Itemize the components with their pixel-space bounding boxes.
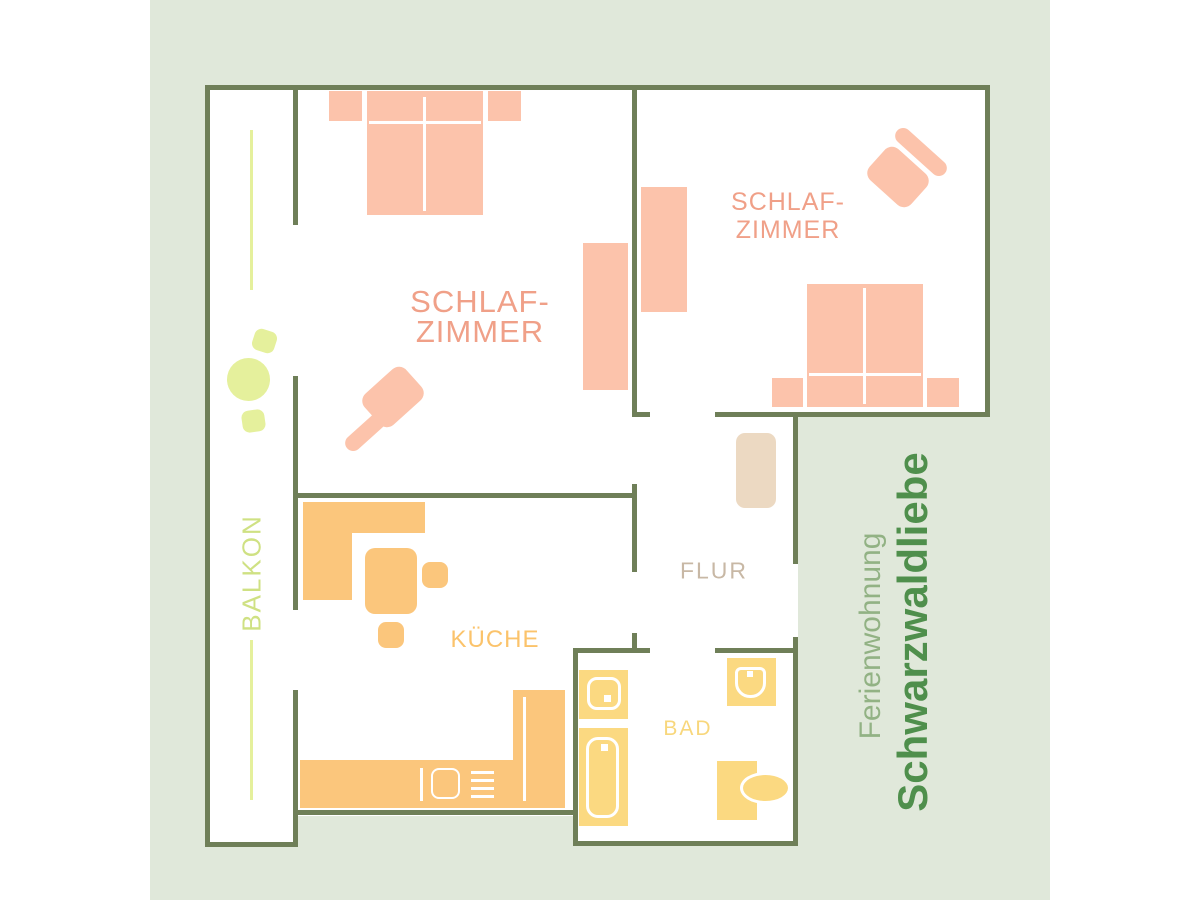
kitchen-counter-divider-line bbox=[523, 697, 526, 801]
bathroom-sink-unit bbox=[579, 670, 628, 719]
balcony-railing-bottom bbox=[250, 640, 253, 800]
bedroom2-label-line1: SCHLAF- bbox=[731, 188, 845, 216]
wall-bath-right bbox=[793, 648, 798, 846]
bedroom2-wardrobe bbox=[641, 187, 687, 312]
bedroom1-label: SCHLAF- ZIMMER bbox=[410, 287, 550, 347]
wall-kitchen-bottom bbox=[294, 810, 578, 815]
bed1-center-line bbox=[423, 97, 426, 211]
kitchen-counter-left-col bbox=[303, 502, 352, 600]
bath-label: BAD bbox=[663, 717, 712, 741]
wall-bedroom1-kitchen bbox=[294, 493, 632, 498]
wall-outer-left bbox=[205, 85, 210, 847]
wall-bath-bottom bbox=[573, 841, 798, 846]
wall-kitchen-hall-lower bbox=[632, 633, 637, 653]
bedroom2-label-line2: ZIMMER bbox=[731, 216, 845, 244]
bathtub bbox=[579, 728, 628, 826]
kitchen-stove-line2 bbox=[471, 779, 494, 782]
kitchen-chair-right bbox=[422, 562, 448, 588]
bathroom-sink-drain bbox=[604, 695, 611, 702]
bed2-nightstand-left bbox=[772, 378, 803, 407]
kitchen-chair-bottom bbox=[378, 622, 404, 648]
balcony-railing-top bbox=[250, 130, 253, 290]
bedroom1-label-line1: SCHLAF- bbox=[410, 287, 550, 317]
kitchen-sink-basin bbox=[431, 768, 460, 799]
bed1-nightstand-left bbox=[329, 91, 362, 121]
wall-bath-top-left bbox=[573, 648, 650, 653]
wall-bath-top-right bbox=[715, 648, 798, 653]
balcony-table bbox=[227, 358, 270, 401]
hall-dresser bbox=[736, 433, 776, 508]
bedroom1-label-line2: ZIMMER bbox=[410, 317, 550, 347]
kitchen-label: KÜCHE bbox=[450, 626, 539, 654]
toilet-bowl bbox=[740, 772, 791, 804]
wall-balcony-bottom bbox=[205, 842, 298, 847]
balcony-label: BALKON bbox=[237, 514, 268, 632]
bed1-nightstand-right bbox=[488, 91, 521, 121]
wall-outer-right-upper bbox=[985, 85, 990, 417]
hall-label: FLUR bbox=[680, 558, 748, 585]
bed2-nightstand-right bbox=[927, 378, 959, 407]
kitchen-sink-divider-line bbox=[420, 768, 423, 801]
balcony-stool-bottom bbox=[241, 409, 267, 434]
kitchen-table bbox=[365, 548, 417, 614]
branding-subtitle: Ferienwohnung bbox=[854, 533, 888, 740]
wall-hall-right-upper bbox=[793, 412, 798, 564]
washbasin-drain bbox=[747, 671, 753, 677]
bathtub-drain bbox=[601, 744, 608, 751]
kitchen-counter-right-col bbox=[513, 690, 565, 808]
wall-bedroom2-south bbox=[715, 412, 990, 417]
bed1-double-bed bbox=[367, 91, 483, 215]
wall-bath-left bbox=[573, 648, 578, 846]
branding-title: Schwarzwaldliebe bbox=[889, 452, 937, 811]
floorplan-page: { "branding": { "subtitle": "Ferienwohnu… bbox=[0, 0, 1200, 900]
bed2-double-bed bbox=[807, 284, 923, 407]
bathroom-sink-basin bbox=[587, 677, 621, 710]
wall-kitchen-hall-upper bbox=[632, 484, 637, 572]
wall-outer-top bbox=[205, 85, 990, 90]
bed2-pillow-line bbox=[809, 373, 921, 376]
wall-bedroom-divider bbox=[632, 85, 637, 417]
kitchen-stove-line3 bbox=[471, 787, 494, 790]
wall-balcony-divider-bottom bbox=[293, 690, 298, 847]
washbasin-unit bbox=[727, 658, 776, 706]
bedroom1-wardrobe bbox=[583, 243, 628, 390]
wall-balcony-divider-top bbox=[293, 85, 298, 225]
bedroom2-label: SCHLAF- ZIMMER bbox=[731, 188, 845, 244]
bed2-center-line bbox=[863, 288, 866, 404]
kitchen-stove-line4 bbox=[471, 795, 494, 798]
kitchen-stove-line1 bbox=[471, 771, 494, 774]
